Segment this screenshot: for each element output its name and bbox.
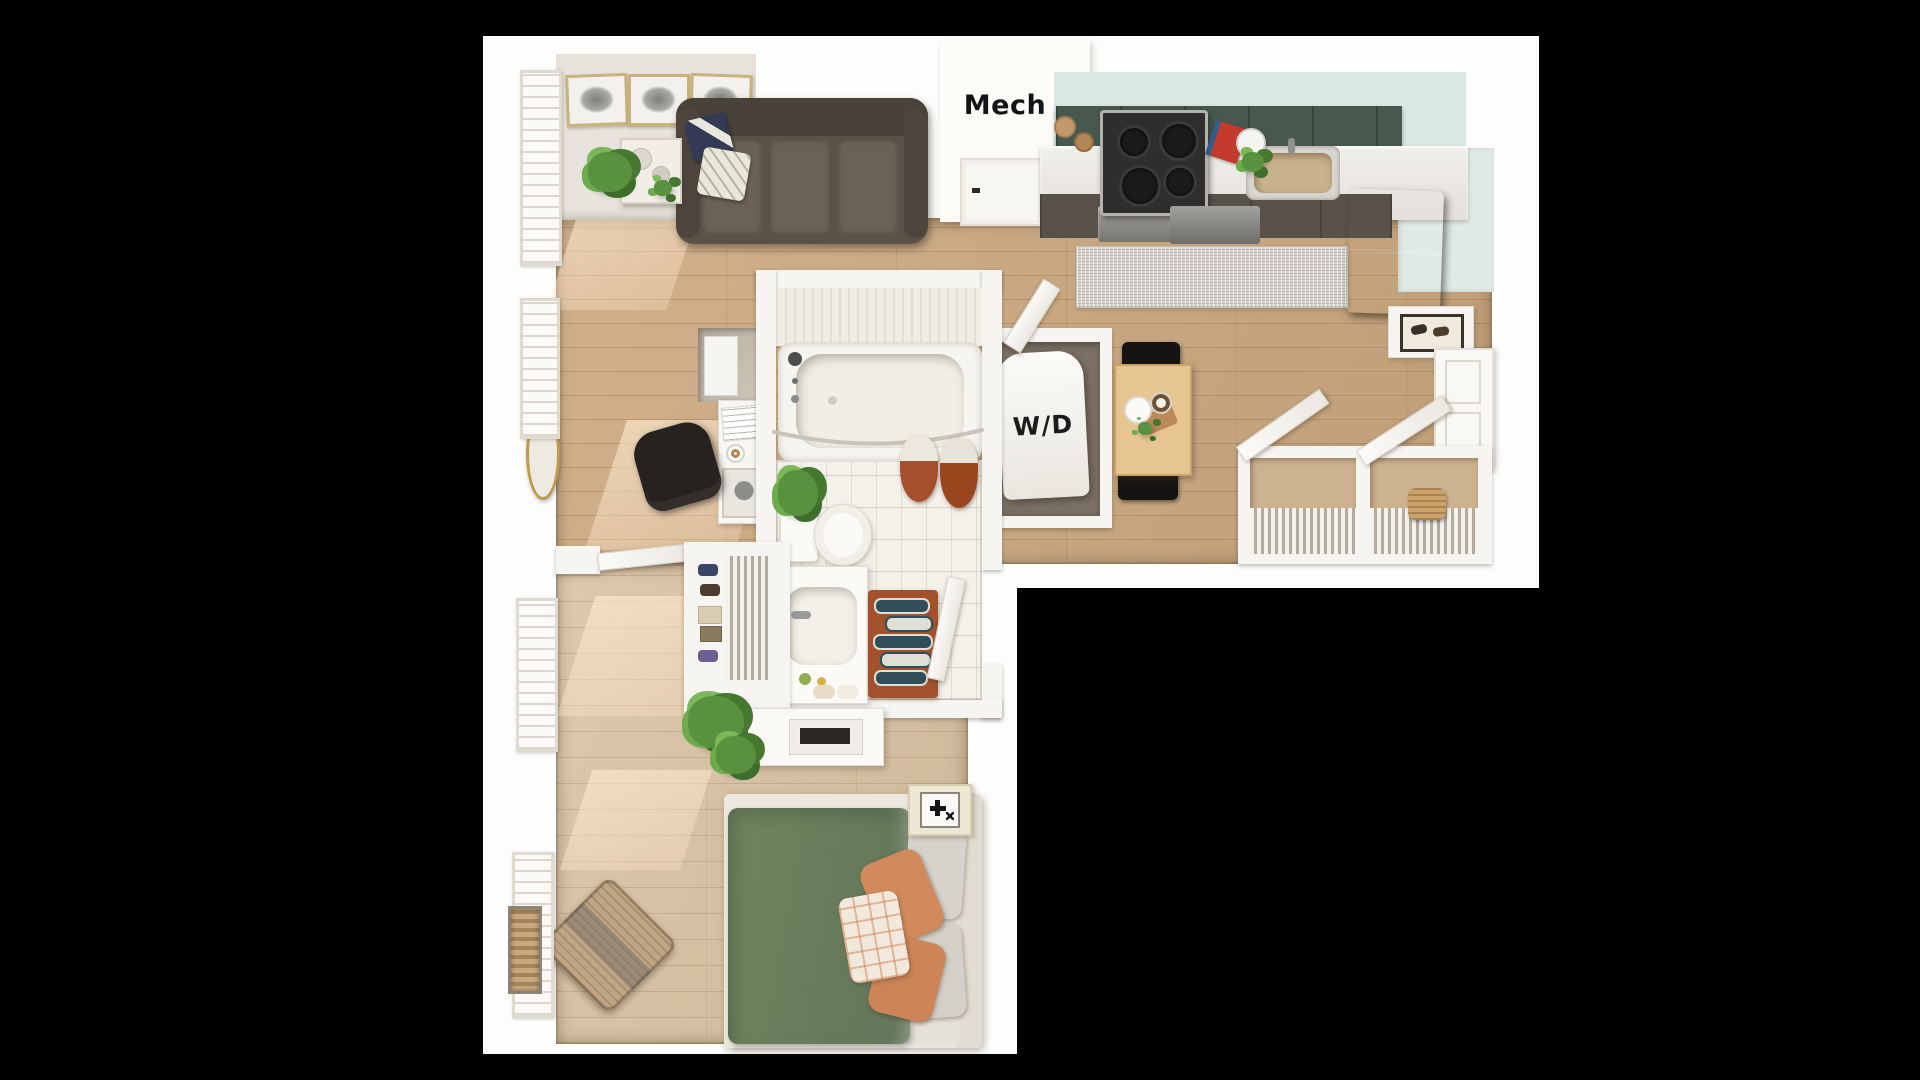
window-living-1	[520, 70, 562, 266]
shower-surround-wall	[776, 288, 982, 346]
rug-bar	[874, 598, 930, 614]
curtain-fold	[940, 438, 978, 508]
bath-rug	[868, 590, 938, 698]
bedroom-closet-shelving	[726, 556, 768, 680]
tub-drain	[828, 396, 837, 405]
tub-faucet	[788, 352, 802, 366]
tray-plant	[1138, 422, 1152, 435]
alcove-shelf	[704, 336, 738, 396]
rug-bar	[880, 652, 932, 668]
shoe-pair	[698, 650, 718, 662]
kitchen-runner-rug	[1076, 246, 1348, 308]
burner	[1119, 165, 1161, 207]
jar	[1074, 132, 1094, 152]
sofa-seat-cushion	[770, 140, 830, 234]
window-living-2	[520, 298, 560, 439]
serving-plate	[1124, 396, 1152, 424]
vanity-sink	[787, 587, 857, 665]
folded-clothes	[698, 606, 722, 624]
coffee-mug	[1150, 392, 1172, 414]
dresser	[740, 708, 884, 766]
table-plant	[654, 180, 672, 196]
counter-jars	[1052, 112, 1098, 156]
decor-plate	[630, 148, 652, 170]
throw-pillow-leaf	[696, 146, 752, 202]
closet-shoes	[696, 562, 722, 680]
x-mark-icon	[946, 812, 954, 820]
rug-bar	[873, 634, 933, 650]
art-frame	[565, 73, 629, 127]
bathroom-wall	[982, 270, 1002, 570]
plus-icon	[935, 800, 940, 816]
washer-dryer: W/D	[996, 350, 1090, 500]
washer-dryer-label: W/D	[1012, 409, 1074, 441]
shoe-pair	[698, 564, 718, 576]
soap-dish	[799, 673, 811, 685]
tray-artwork	[797, 725, 853, 747]
vanity	[778, 566, 868, 704]
sofa-seat-cushion	[838, 140, 898, 234]
dining-table	[1114, 364, 1192, 476]
refrigerator	[1346, 188, 1444, 315]
vanity-faucet	[791, 611, 811, 619]
dishwasher	[1170, 206, 1260, 244]
curtain-fold	[900, 436, 938, 502]
nightstand	[908, 784, 972, 836]
nightstand-art-frame	[920, 792, 960, 828]
bedroom-wall-stub	[556, 546, 600, 574]
rug-bar	[885, 616, 933, 632]
toilet-bowl	[814, 504, 872, 566]
window-bedroom-1	[516, 598, 558, 752]
shoe	[1432, 326, 1449, 337]
sofa-armrest	[904, 108, 928, 238]
shower-curtain	[898, 436, 982, 508]
jar	[1054, 116, 1076, 138]
burner	[1117, 125, 1151, 159]
trailing-plant	[716, 736, 756, 774]
bedroom-closet-shell	[684, 542, 790, 714]
stove-cooktop	[1100, 110, 1208, 216]
closet-interior	[1370, 458, 1478, 554]
potted-plant-living	[588, 152, 632, 192]
shoe-tray	[1400, 314, 1464, 352]
storage-basket	[1408, 488, 1446, 520]
shoe	[1410, 323, 1428, 335]
rug-bar	[874, 670, 928, 686]
shoe-pair	[700, 584, 720, 596]
wall-vent-niche	[508, 906, 542, 994]
coffee-cup	[726, 444, 745, 463]
folded-clothes	[700, 626, 722, 642]
floor-plan-stage: Mech	[0, 0, 1920, 1080]
sink-basin	[1254, 153, 1332, 193]
burner	[1163, 165, 1197, 199]
rolled-towels	[813, 685, 835, 699]
toilet-plant	[778, 470, 818, 516]
door-handle	[972, 188, 980, 193]
counter-plant	[1242, 152, 1264, 172]
sink-faucet	[1288, 138, 1295, 154]
burner	[1159, 121, 1199, 161]
door-panel	[1445, 360, 1481, 404]
closet-interior	[1250, 458, 1356, 554]
closet-wire-shelving	[1250, 508, 1356, 554]
